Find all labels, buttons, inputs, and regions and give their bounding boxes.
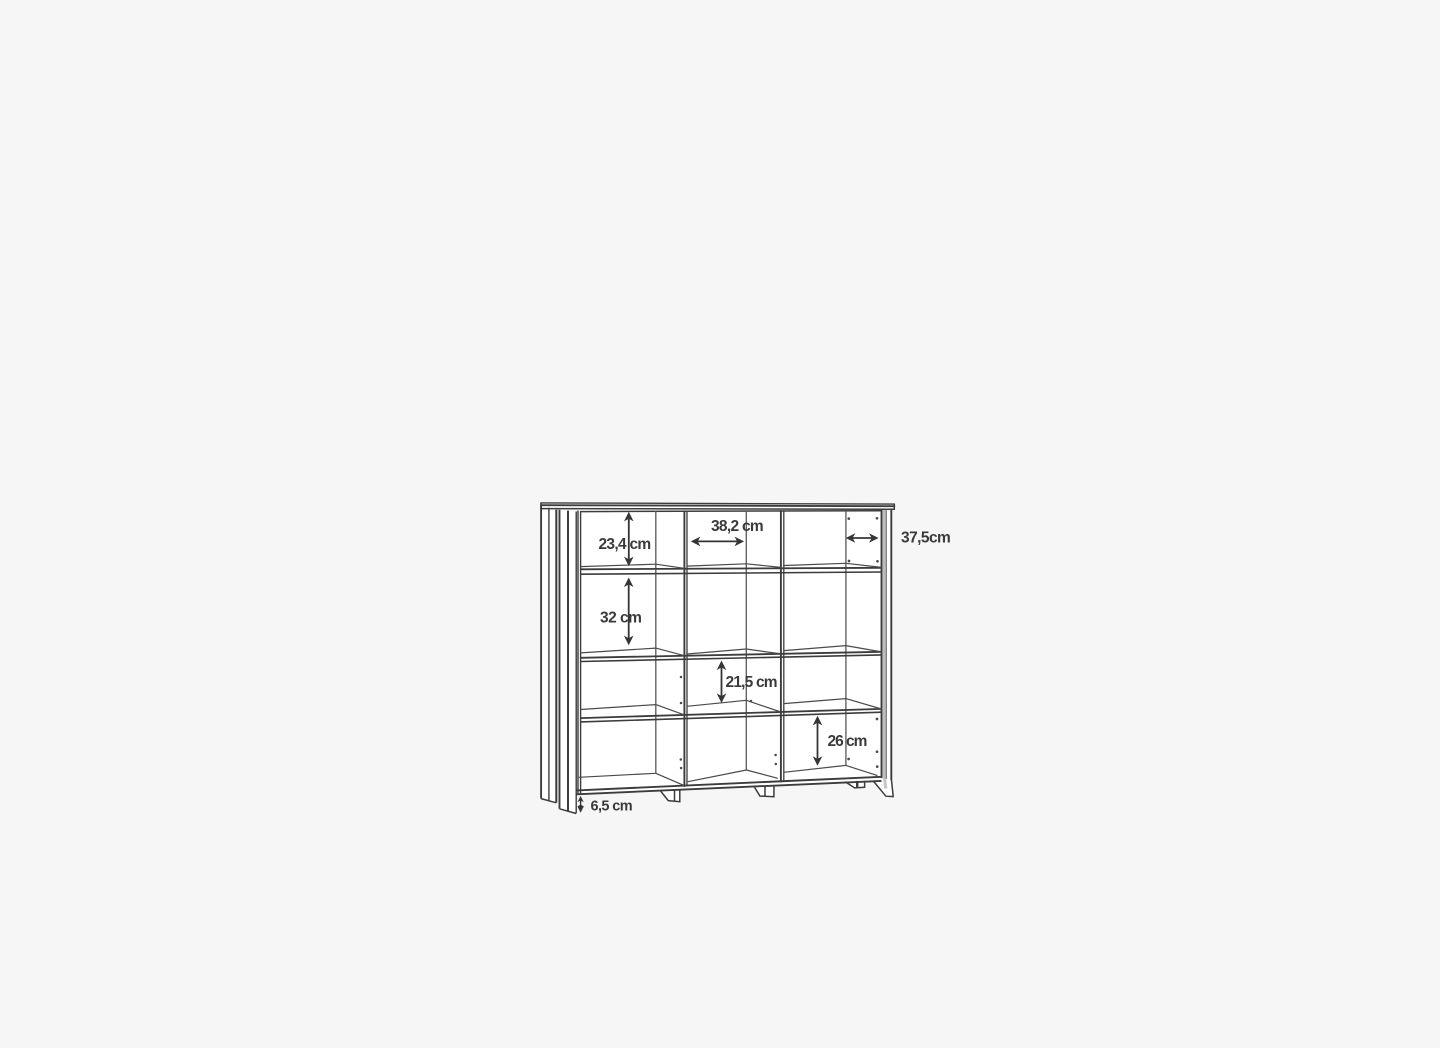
svg-text:6,5 cm: 6,5 cm [591,799,633,815]
svg-text:38,2 cm: 38,2 cm [711,518,763,535]
svg-text:37,5cm: 37,5cm [901,530,950,547]
svg-text:32 cm: 32 cm [600,610,641,627]
svg-text:21,5 cm: 21,5 cm [726,674,777,691]
svg-text:23,4 cm: 23,4 cm [599,536,651,553]
svg-text:26 cm: 26 cm [828,733,867,750]
